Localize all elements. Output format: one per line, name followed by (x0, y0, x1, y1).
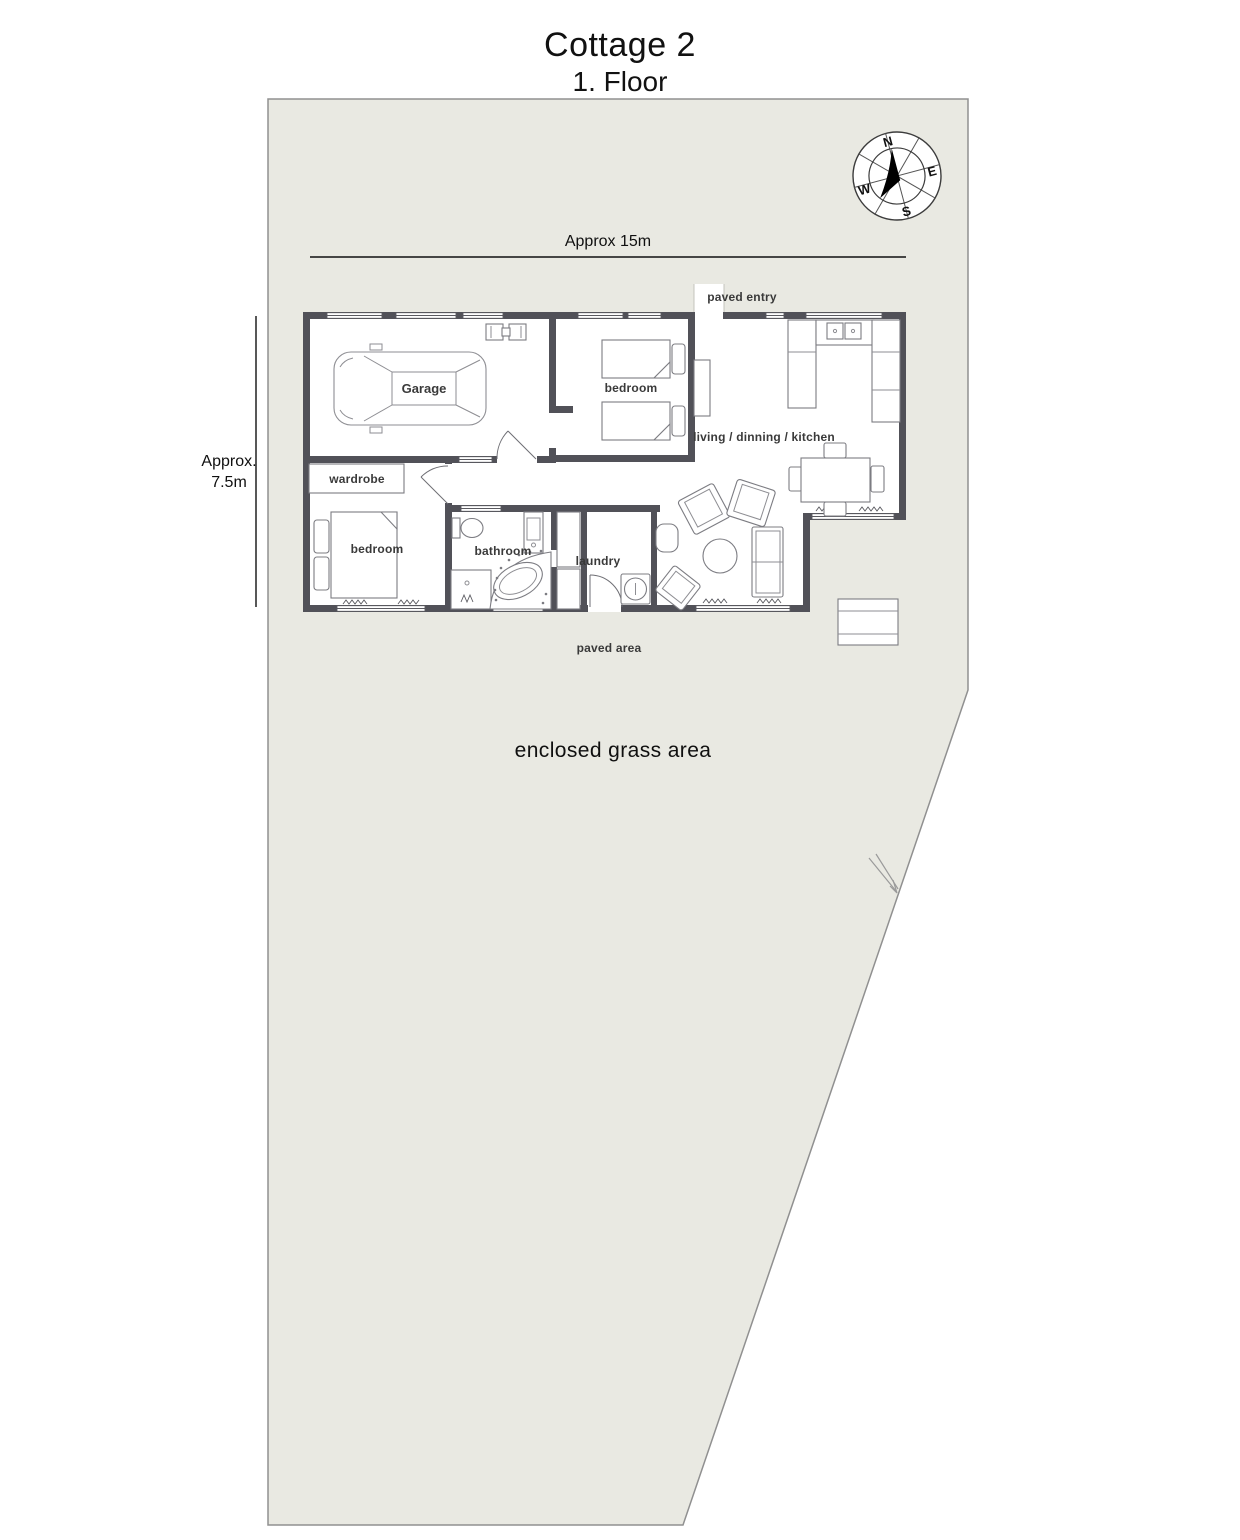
wardrobe-label: wardrobe (328, 472, 385, 486)
dining-chair (824, 443, 846, 458)
dimension-height-label-2: 7.5m (211, 474, 247, 491)
window (578, 313, 623, 319)
dimension-height: Approx. 7.5m (201, 316, 256, 607)
window (766, 313, 784, 319)
window (459, 457, 492, 463)
toilet (452, 518, 483, 538)
outdoor-table (838, 599, 898, 645)
coffee-table (703, 539, 737, 573)
paved-entry-label: paved entry (707, 290, 777, 304)
dimension-width-label: Approx 15m (565, 233, 651, 250)
dimension-height-label-1: Approx. (201, 453, 256, 470)
bedroom-left-label: bedroom (351, 542, 404, 556)
wall-garage-bedroom (549, 316, 556, 412)
single-bed-1 (602, 340, 685, 378)
floorplan-page: Cottage 2 1. Floor N E S W Approx (0, 0, 1240, 1540)
wall-bath-cabinet-bottom (551, 567, 557, 612)
wardrobe-niche (694, 360, 710, 416)
washing-machine (621, 574, 650, 604)
wall-step-vertical (803, 513, 810, 612)
window (461, 506, 501, 512)
bathroom-label: bathroom (475, 544, 532, 558)
window (396, 313, 456, 319)
sofa (752, 527, 783, 597)
window (327, 313, 382, 319)
window (463, 313, 503, 319)
window (628, 313, 661, 319)
paved-area-label: paved area (577, 641, 642, 655)
side-table (656, 524, 678, 552)
window (337, 606, 425, 612)
dining-chair (824, 502, 846, 516)
wall-garage-bedroom-stub (549, 406, 573, 413)
living-label: living / dinning / kitchen (693, 430, 835, 444)
dining-chair (789, 467, 802, 491)
wall-bedroom-bottom (549, 455, 695, 462)
dining-table (801, 458, 870, 502)
dining-chair (871, 466, 884, 492)
single-bed-2 (602, 402, 685, 440)
window (696, 606, 790, 612)
grass-area-label: enclosed grass area (515, 739, 712, 762)
shower (451, 570, 491, 609)
laundry-label: laundry (576, 554, 621, 568)
wall-laundry-right (651, 505, 657, 612)
garage-label: Garage (402, 381, 447, 396)
wall-bath-cabinet-top (551, 505, 557, 550)
floorplan-canvas: N E S W Approx 15m Approx. 7.5m (0, 0, 1240, 1540)
window (806, 313, 882, 319)
bedroom-top-label: bedroom (605, 381, 658, 395)
